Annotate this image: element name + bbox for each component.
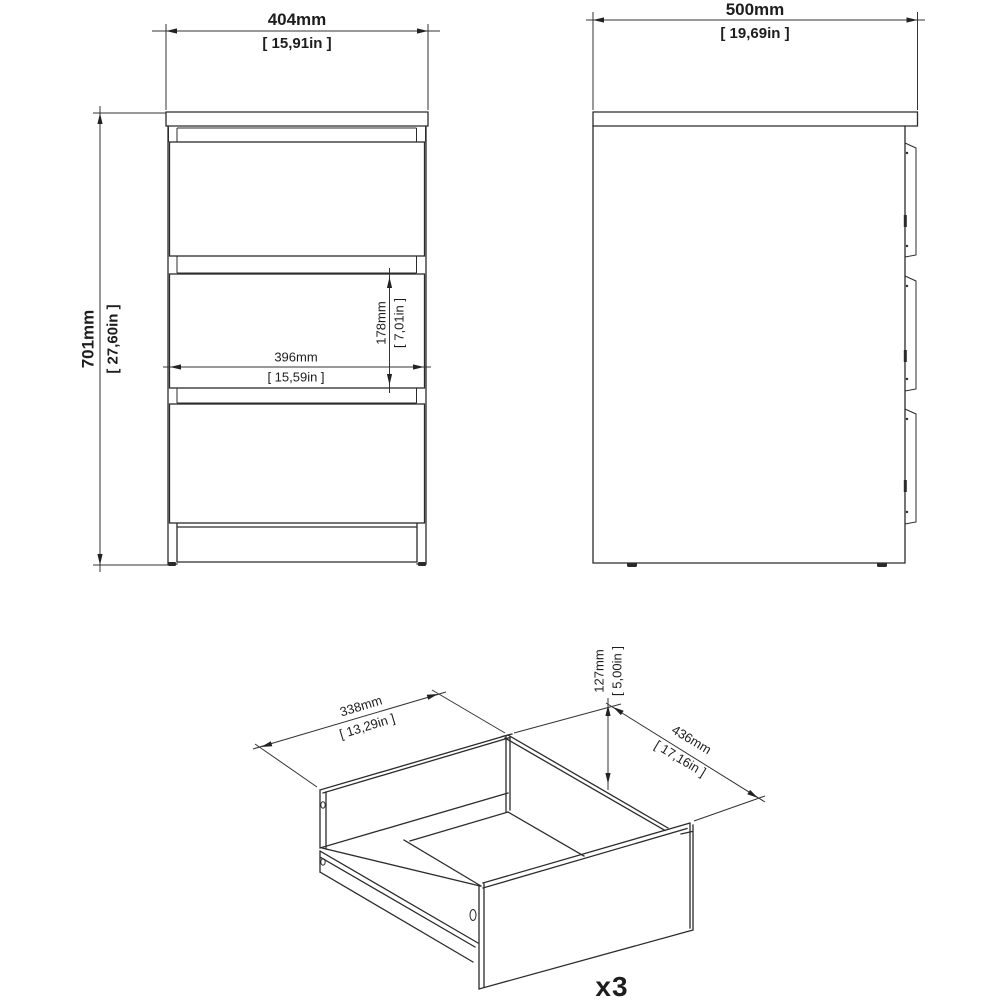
drawer-front-height-dimension: 178mm [ 7,01in ]: [375, 298, 406, 348]
front-width-mm: 404mm: [268, 11, 327, 28]
drawer-box-height-mm: 127mm: [593, 649, 606, 692]
screw-hole-front: [470, 910, 476, 921]
iso-back-panel: [320, 734, 512, 849]
side-foot-left: [627, 563, 637, 568]
side-foot-right: [877, 563, 887, 568]
front-height-in: [ 27,60in ]: [106, 304, 121, 373]
front-drawer-3: [170, 404, 425, 523]
front-height-mm: 701mm: [80, 310, 97, 369]
drawer-box-height-dimension: 127mm [ 5,00in ]: [593, 646, 624, 696]
technical-drawing-canvas: 404mm [ 15,91in ] 701mm [ 27,60in ] 396m…: [0, 0, 1000, 1000]
front-drawer-1: [170, 142, 425, 256]
inner-width-in: [ 15,59in ]: [267, 371, 324, 384]
side-tab-mark-1: [904, 215, 907, 227]
drawer-front-height-mm: 178mm: [375, 301, 388, 344]
side-drawer-tabs: [905, 143, 916, 524]
inner-width-dimension: 396mm [ 15,59in ]: [267, 351, 324, 384]
iso-front-panel: [479, 823, 693, 989]
screw-hole-back-bottom: [321, 859, 325, 865]
front-top-panel: [166, 112, 428, 126]
inner-width-mm: 396mm: [274, 351, 317, 364]
side-tab-dots: [906, 152, 908, 513]
front-foot-right: [418, 562, 426, 566]
side-depth-dimension: 500mm [ 19,69in ]: [720, 1, 789, 41]
front-width-in: [ 15,91in ]: [262, 36, 331, 51]
drawer-depth-dim-lines: [514, 703, 765, 821]
side-body: [593, 126, 905, 563]
front-height-dimension: 701mm [ 27,60in ]: [80, 304, 121, 373]
side-tab-mark-2: [904, 350, 907, 362]
iso-left-rail: [320, 848, 480, 962]
side-tab-mark-3: [904, 480, 907, 492]
side-top-panel: [593, 112, 918, 126]
front-width-dimension: 404mm [ 15,91in ]: [262, 11, 331, 51]
drawer-height-dim-lines: [605, 698, 610, 790]
drawer-box-height-in: [ 5,00in ]: [611, 646, 624, 696]
drawing-linework: [0, 0, 1000, 1000]
side-view: [586, 12, 925, 567]
side-depth-mm: 500mm: [726, 1, 785, 18]
side-depth-in: [ 19,69in ]: [720, 26, 789, 41]
screw-hole-back-top: [321, 802, 325, 808]
drawer-front-height-in: [ 7,01in ]: [393, 298, 406, 348]
drawer-quantity-label: x3: [595, 971, 628, 1000]
